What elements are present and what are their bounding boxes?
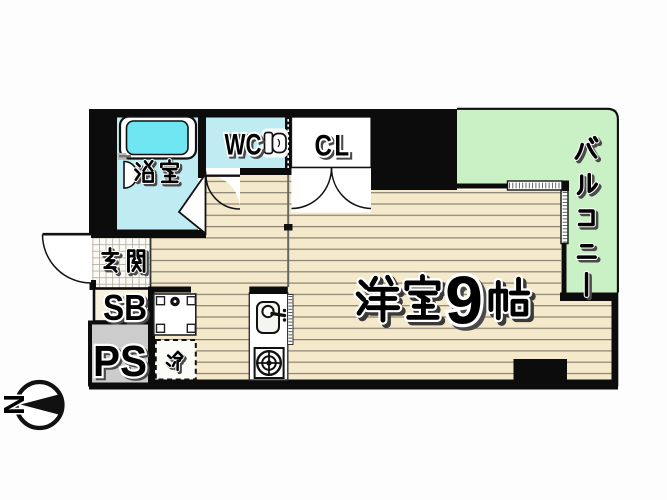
svg-text:N: N xyxy=(0,394,29,415)
svg-text:PS: PS xyxy=(93,337,147,386)
svg-text:CL: CL xyxy=(315,129,352,162)
svg-text:9: 9 xyxy=(445,262,483,338)
svg-text:SB: SB xyxy=(103,287,147,328)
svg-text:WC: WC xyxy=(225,128,262,161)
